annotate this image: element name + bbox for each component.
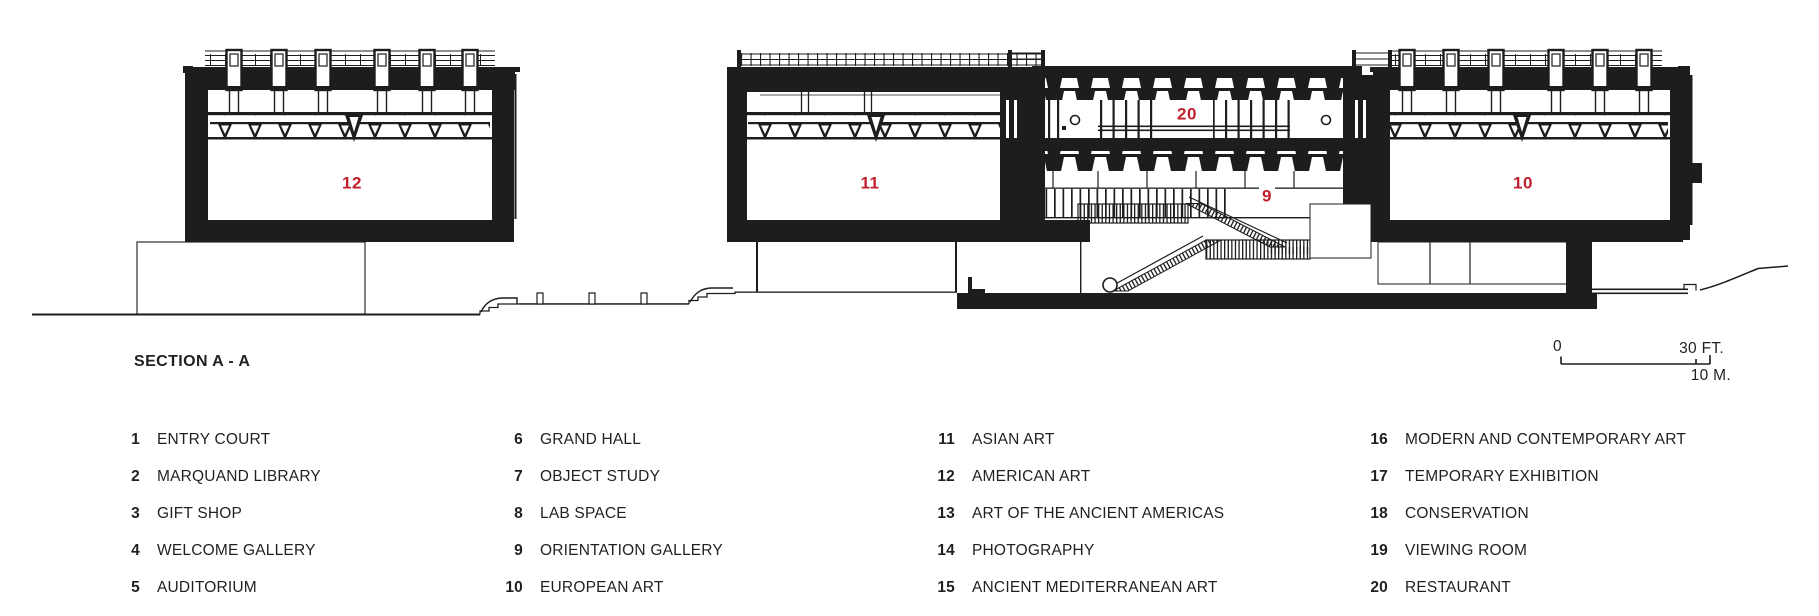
legend-item: 18CONSERVATION (1358, 505, 1686, 542)
legend-item: 1ENTRY COURT (110, 431, 321, 468)
legend-label: MARQUAND LIBRARY (157, 468, 321, 486)
legend-label: RESTAURANT (1405, 579, 1511, 597)
legend-number: 11 (925, 431, 955, 449)
legend-column-2: 6GRAND HALL 7OBJECT STUDY 8LAB SPACE 9OR… (493, 431, 723, 616)
legend-label: OBJECT STUDY (540, 468, 660, 486)
legend-item: 10EUROPEAN ART (493, 579, 723, 616)
legend-label: PHOTOGRAPHY (972, 542, 1095, 560)
section-title: SECTION A - A (134, 353, 250, 371)
legend-label: AMERICAN ART (972, 468, 1090, 486)
legend-label: WELCOME GALLERY (157, 542, 316, 560)
legend-item: 13ART OF THE ANCIENT AMERICAS (925, 505, 1224, 542)
legend-number: 2 (110, 468, 140, 486)
legend-item: 20RESTAURANT (1358, 579, 1686, 616)
legend-label: CONSERVATION (1405, 505, 1529, 523)
legend-item: 11ASIAN ART (925, 431, 1224, 468)
legend-number: 15 (925, 579, 955, 597)
legend-label: VIEWING ROOM (1405, 542, 1527, 560)
legend-item: 8LAB SPACE (493, 505, 723, 542)
legend-number: 8 (493, 505, 523, 523)
legend-label: ORIENTATION GALLERY (540, 542, 723, 560)
legend-number: 6 (493, 431, 523, 449)
legend-number: 1 (110, 431, 140, 449)
legend-label: GRAND HALL (540, 431, 641, 449)
legend-item: 2MARQUAND LIBRARY (110, 468, 321, 505)
legend-item: 12AMERICAN ART (925, 468, 1224, 505)
building-12 (183, 50, 520, 242)
legend-number: 4 (110, 542, 140, 560)
legend-number: 20 (1358, 579, 1388, 597)
legend-label: EUROPEAN ART (540, 579, 664, 597)
legend-number: 3 (110, 505, 140, 523)
room-number-10: 10 (1510, 175, 1536, 192)
legend-item: 4WELCOME GALLERY (110, 542, 321, 579)
architectural-section-page: { "title": "SECTION A - A", "scale_bar":… (0, 0, 1819, 613)
legend-number: 12 (925, 468, 955, 486)
legend-number: 10 (493, 579, 523, 597)
legend-column-4: 16MODERN AND CONTEMPORARY ART 17TEMPORAR… (1358, 431, 1686, 616)
legend-item: 16MODERN AND CONTEMPORARY ART (1358, 431, 1686, 468)
legend-item: 9ORIENTATION GALLERY (493, 542, 723, 579)
legend-label: LAB SPACE (540, 505, 627, 523)
legend-number: 19 (1358, 542, 1388, 560)
room-number-12: 12 (339, 175, 365, 192)
legend-item: 17TEMPORARY EXHIBITION (1358, 468, 1686, 505)
central-pavilion (1000, 50, 1392, 293)
legend-label: ANCIENT MEDITERRANEAN ART (972, 579, 1218, 597)
legend-item: 7OBJECT STUDY (493, 468, 723, 505)
legend-number: 17 (1358, 468, 1388, 486)
legend-item: 19VIEWING ROOM (1358, 542, 1686, 579)
building-10 (1370, 50, 1702, 296)
legend-number: 16 (1358, 431, 1388, 449)
scale-meters-label: 10 M. (1675, 367, 1731, 385)
legend-item: 14PHOTOGRAPHY (925, 542, 1224, 579)
legend-item: 5AUDITORIUM (110, 579, 321, 616)
legend-label: MODERN AND CONTEMPORARY ART (1405, 431, 1686, 449)
legend-label: TEMPORARY EXHIBITION (1405, 468, 1599, 486)
legend-column-3: 11ASIAN ART 12AMERICAN ART 13ART OF THE … (925, 431, 1224, 616)
legend-label: ENTRY COURT (157, 431, 270, 449)
legend-number: 9 (493, 542, 523, 560)
legend-label: ART OF THE ANCIENT AMERICAS (972, 505, 1224, 523)
legend-item: 3GIFT SHOP (110, 505, 321, 542)
scale-zero-label: 0 (1553, 338, 1562, 356)
legend-column-1: 1ENTRY COURT 2MARQUAND LIBRARY 3GIFT SHO… (110, 431, 321, 616)
legend-number: 14 (925, 542, 955, 560)
room-number-9: 9 (1259, 188, 1275, 205)
legend-label: AUDITORIUM (157, 579, 257, 597)
legend-item: 15ANCIENT MEDITERRANEAN ART (925, 579, 1224, 616)
legend-number: 5 (110, 579, 140, 597)
legend-label: GIFT SHOP (157, 505, 242, 523)
room-number-11: 11 (858, 175, 883, 192)
legend-label: ASIAN ART (972, 431, 1055, 449)
legend-number: 13 (925, 505, 955, 523)
legend-item: 6GRAND HALL (493, 431, 723, 468)
legend-number: 18 (1358, 505, 1388, 523)
scale-feet-label: 30 FT. (1668, 340, 1724, 358)
legend-number: 7 (493, 468, 523, 486)
room-number-20: 20 (1174, 106, 1200, 123)
